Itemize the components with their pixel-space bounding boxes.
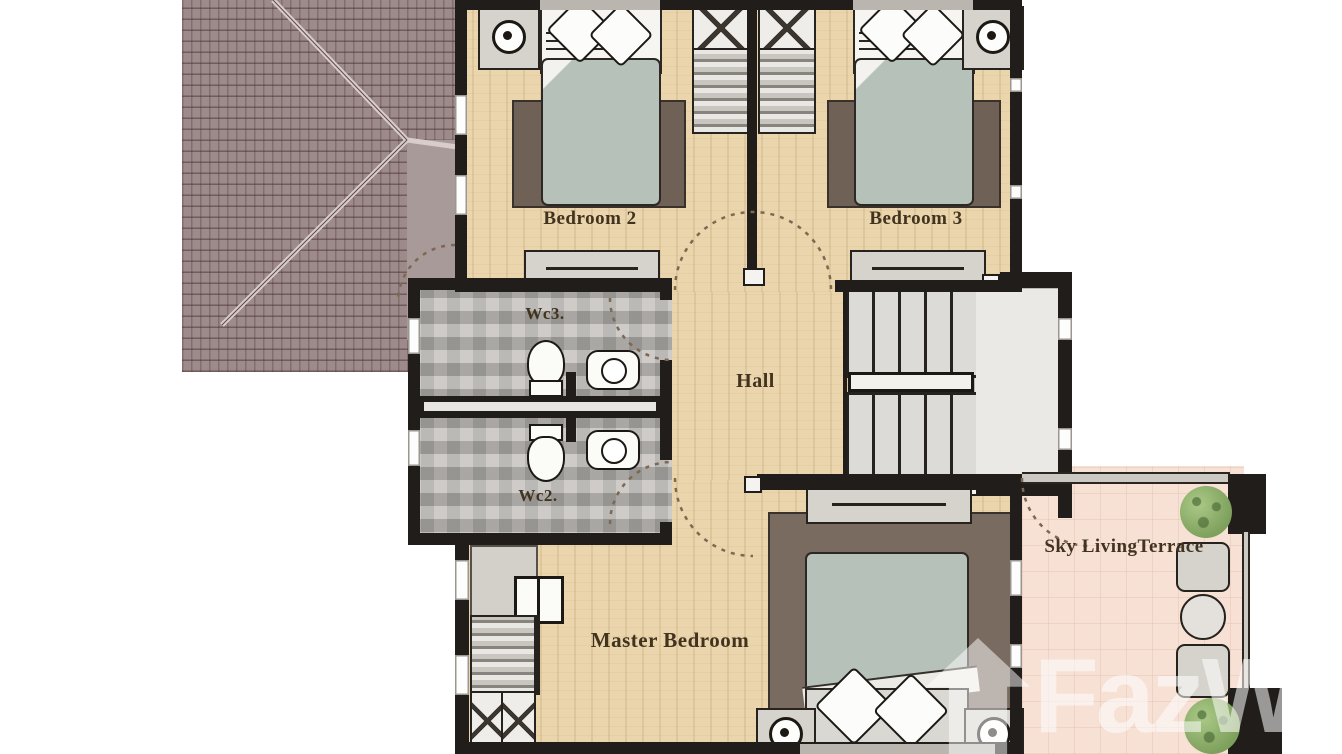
stair-landing-floor (974, 288, 1062, 486)
toilet-icon (527, 436, 565, 482)
wc-partition-stub (566, 372, 576, 396)
wc3-label: Wc3. (505, 304, 585, 324)
master-wardrobe-hanging (470, 615, 540, 695)
terrace-north-rail (1022, 472, 1230, 484)
terrace-table (1180, 594, 1226, 640)
stairs-landing-bar (848, 372, 974, 392)
terrace-ne-wall (1228, 474, 1266, 534)
closet-left-hanging (692, 48, 750, 134)
door-jamb (744, 476, 762, 493)
toilet-tank (529, 380, 563, 397)
bedrooms-middle-wall (747, 0, 757, 268)
window-gap (1010, 78, 1022, 92)
window-sill (540, 0, 660, 10)
stairs-upper-flight (846, 288, 976, 378)
lamp-icon (976, 20, 1010, 54)
bedroom2-bed-duvet (541, 58, 661, 206)
closet-right-top (758, 4, 816, 52)
window-gap (1058, 318, 1072, 340)
bedroom2-label: Bedroom 2 (520, 208, 660, 230)
stairs-lower-flight (846, 392, 976, 486)
window-sill (853, 0, 973, 10)
window-gap (1010, 560, 1022, 596)
terrace-label: Sky LivingTerrace (1024, 536, 1224, 558)
window-gap (408, 430, 420, 466)
window-gap (455, 95, 467, 135)
lamp-icon (492, 20, 526, 54)
bedroom3-bottom-wall (835, 280, 1022, 292)
sink-icon (586, 430, 640, 470)
wc-wall-right (660, 522, 672, 545)
door-jamb (743, 268, 765, 286)
master-console (806, 486, 972, 524)
window-gap (1010, 644, 1022, 668)
bedroom2-left-wall (455, 0, 467, 292)
master-east-wall (1010, 474, 1022, 754)
plant-icon (1180, 486, 1232, 538)
sink-icon (586, 350, 640, 390)
window-gap (455, 560, 469, 600)
wc2-label: Wc2. (498, 486, 578, 506)
bedroom3-right-wall (1010, 0, 1022, 292)
window-gap (1058, 428, 1072, 450)
bedroom2-nightstand (478, 6, 540, 70)
window-gap (1010, 185, 1022, 199)
master-north-wall (757, 474, 1022, 490)
closet-left-top (692, 4, 750, 52)
window-gap (455, 655, 469, 695)
master-bedroom-label: Master Bedroom (568, 628, 772, 653)
wc-wall-bottom (408, 533, 672, 545)
watermark-text: FazWa (1034, 636, 1342, 754)
wc-counter (424, 402, 656, 411)
closet-right-hanging (758, 48, 816, 134)
wc-partition-stub (566, 418, 576, 442)
bedroom2-bottom-wall (455, 280, 672, 292)
window-gap (455, 175, 467, 215)
hall-label: Hall (708, 370, 803, 393)
floor-plan: Bedroom 2 Bedroom 3 Hall Wc3. Wc2. Maste… (0, 0, 1342, 754)
bedroom3-label: Bedroom 3 (846, 208, 986, 230)
stairs-left-rail (843, 288, 847, 480)
bedroom3-bed-duvet (854, 58, 974, 206)
window-gap (408, 318, 420, 354)
